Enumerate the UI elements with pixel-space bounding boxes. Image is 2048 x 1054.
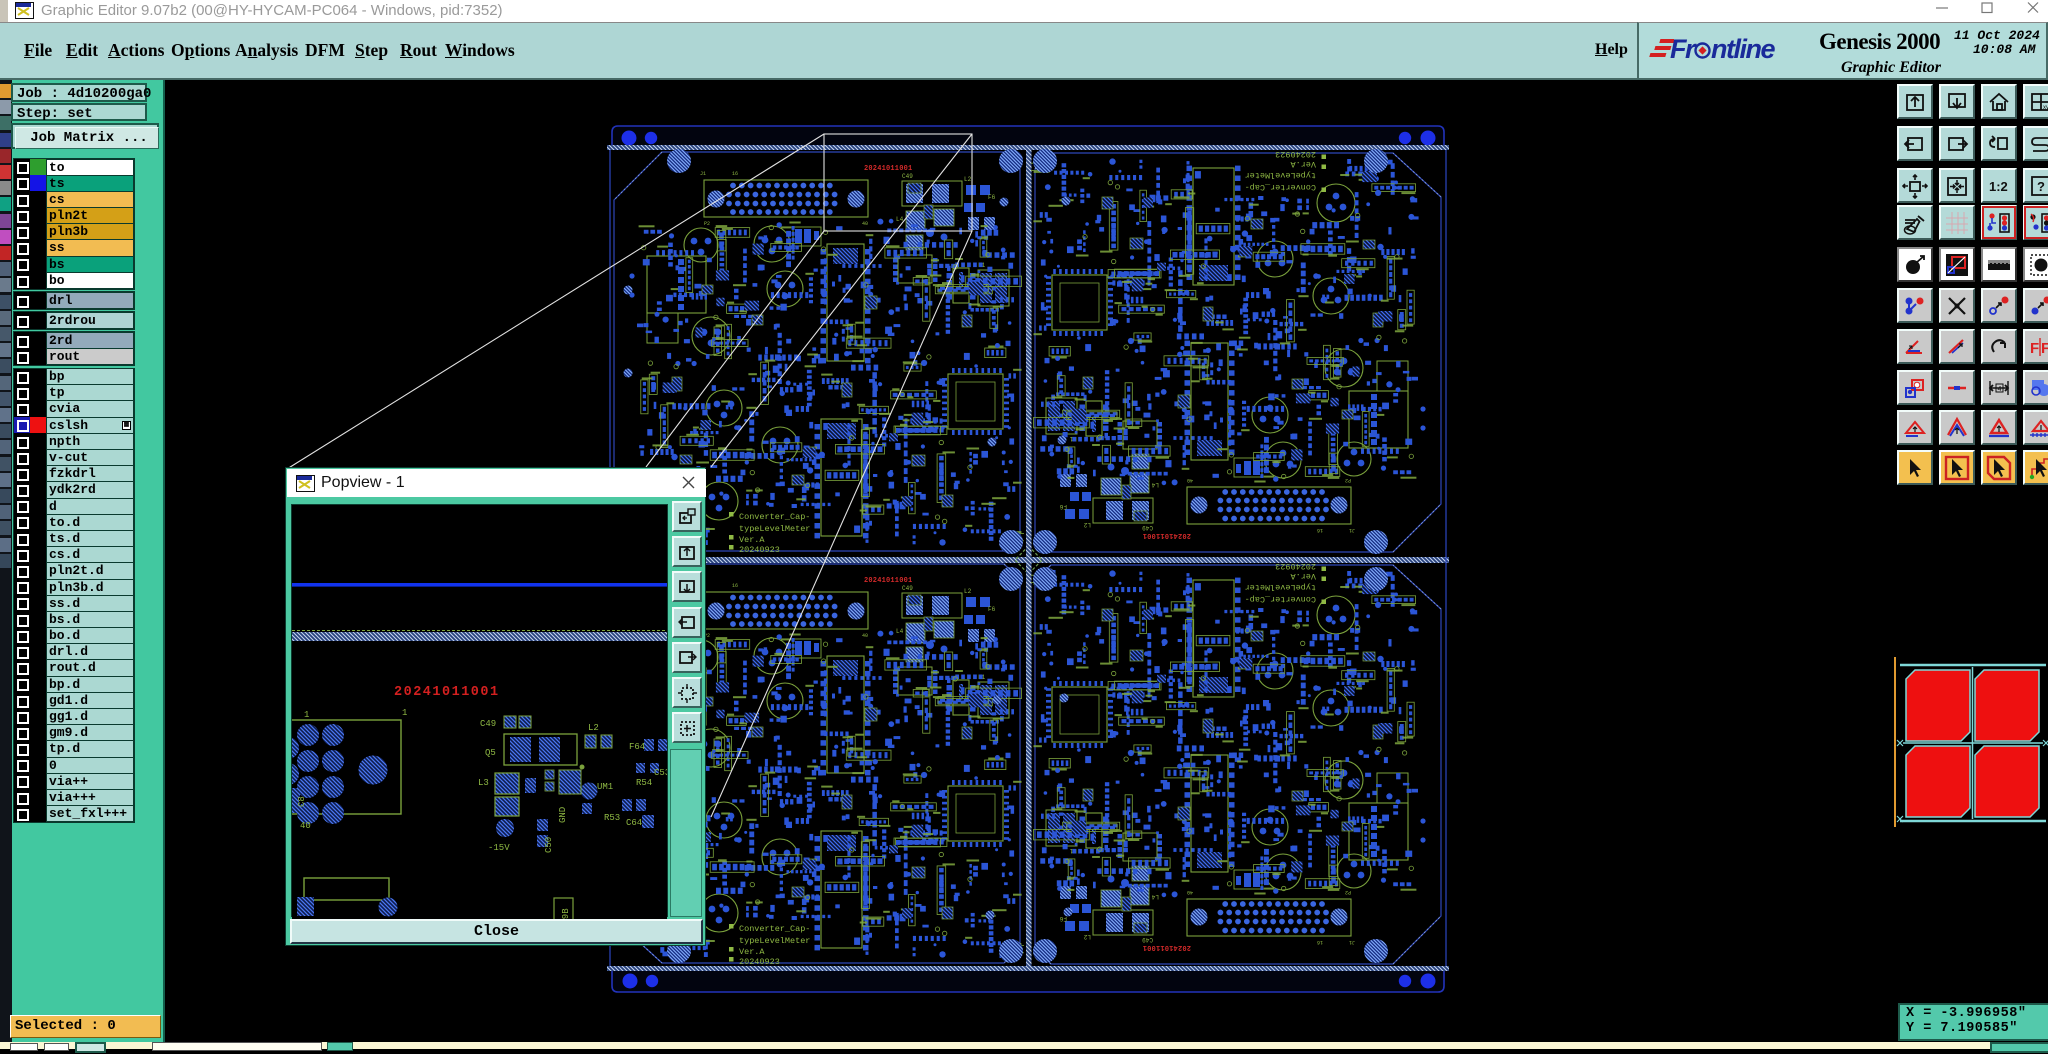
svg-text:?: ?	[2037, 179, 2045, 194]
svg-text:C49: C49	[480, 719, 496, 729]
svg-text:L2: L2	[588, 723, 599, 733]
svg-text:C53: C53	[654, 768, 667, 778]
svg-text:C8: C8	[297, 796, 307, 807]
svg-text:F: F	[2041, 340, 2048, 357]
svg-text:F64: F64	[629, 742, 645, 752]
svg-text:4: 4	[1998, 386, 2002, 393]
svg-text:R53: R53	[604, 813, 620, 823]
svg-text:UM1: UM1	[597, 782, 613, 792]
svg-text:1: 1	[304, 710, 309, 720]
svg-text:1: 1	[402, 708, 407, 718]
svg-text:xy: xy	[2043, 105, 2048, 111]
svg-text:1:2: 1:2	[1989, 179, 2008, 194]
svg-text:40: 40	[300, 821, 311, 831]
svg-text:GND: GND	[558, 807, 568, 823]
svg-text:C50: C50	[544, 837, 554, 853]
svg-text:L3: L3	[478, 778, 489, 788]
svg-text:C64: C64	[626, 818, 642, 828]
svg-text:F: F	[2030, 340, 2039, 357]
svg-text:-15V: -15V	[488, 843, 510, 853]
svg-text:R54: R54	[636, 778, 652, 788]
svg-text:20241011001: 20241011001	[394, 685, 500, 700]
svg-text:Q5: Q5	[485, 748, 496, 758]
